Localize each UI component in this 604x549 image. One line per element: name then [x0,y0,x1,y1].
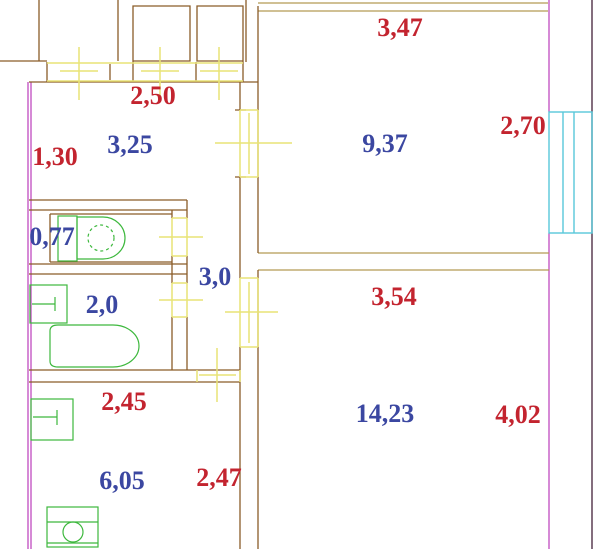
wc-door [159,218,203,256]
kitchen-door [197,348,240,402]
area-label-0-77: 0,77 [29,224,75,250]
kitchen-sink-tap [33,410,57,425]
floor-plan: 2,50 3,47 1,30 2,70 3,25 9,37 0,77 3,0 2… [0,0,604,549]
door-325-937 [215,110,292,177]
window [549,112,592,233]
toilet-bowl [77,217,125,259]
stove-burner [63,522,83,542]
dim-label-4-02: 4,02 [495,402,541,428]
area-label-6-05: 6,05 [99,468,145,494]
wc-top-wall [29,200,187,210]
openings [47,47,592,402]
wc-bath-wall [29,264,187,274]
dim-label-3-54: 3,54 [371,284,417,310]
dim-label-2-70: 2,70 [500,113,546,139]
bathtub-fixture [50,325,139,367]
window-frame [549,112,592,233]
area-label-3-25: 3,25 [107,132,153,158]
corridor-left-wall [172,200,187,370]
upper-walls [0,0,246,82]
area-label-2-0: 2,0 [86,292,119,318]
window-panes [563,112,574,233]
area-label-9-37: 9,37 [362,131,408,157]
stove-body [47,507,98,547]
washbasin-tap [32,297,55,311]
bath-kitchen-wall [29,370,240,382]
area-label-14-23: 14,23 [356,401,415,427]
kitchen-sink-fixture [31,399,73,440]
area-label-3-0: 3,0 [199,264,232,290]
floor-plan-drawing [0,0,604,549]
kitchen-sink-body [31,399,73,440]
dim-label-2-45: 2,45 [101,389,147,415]
stove-fixture [47,507,98,547]
room-1423-door [225,278,278,347]
top-wall-room-937 [258,3,548,11]
stove-lines [47,522,98,543]
upper-structures [0,0,246,82]
bath-door [159,283,203,317]
dim-label-1-30: 1,30 [32,144,78,170]
dim-label-3-47: 3,47 [377,15,423,41]
divider-937-1423 [258,253,549,270]
washbasin-fixture [30,285,67,323]
toilet-seat [88,225,114,251]
dim-label-2-47: 2,47 [196,465,242,491]
dim-label-2-50: 2,50 [130,83,176,109]
